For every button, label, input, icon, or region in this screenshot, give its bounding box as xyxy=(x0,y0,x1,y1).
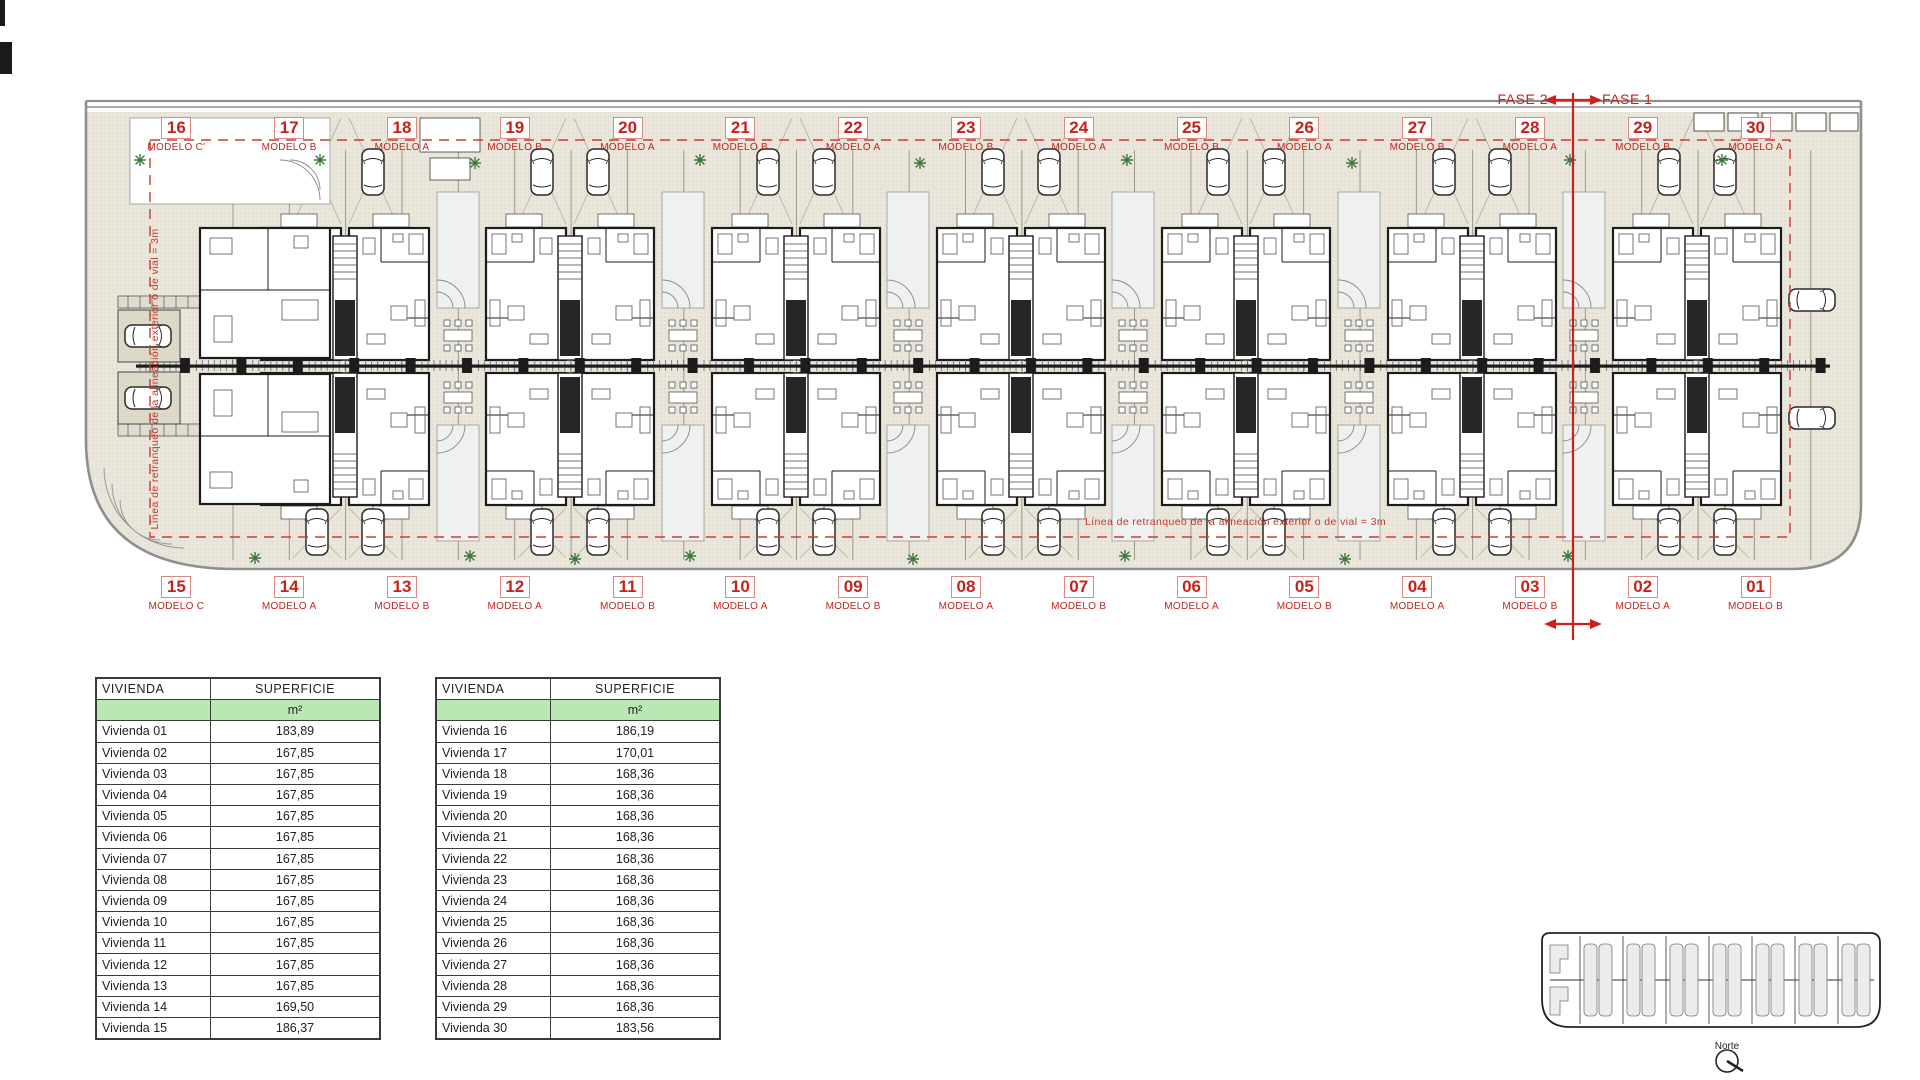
table-row: Vivienda 03 167,85 xyxy=(97,764,379,785)
table-row: Vivienda 24 168,36 xyxy=(437,891,719,912)
table-row: Vivienda 11 167,85 xyxy=(97,933,379,954)
table-row: Vivienda 04 167,85 xyxy=(97,785,379,806)
unit-number-badge: 08 xyxy=(951,576,981,598)
unit-modelo-label: MODELO B xyxy=(1390,142,1445,153)
superficie-value: 186,37 xyxy=(211,1018,379,1038)
vivienda-label: Vivienda 05 xyxy=(97,806,211,826)
superficie-value: 168,36 xyxy=(551,933,719,953)
unit-number-badge: 29 xyxy=(1628,117,1658,139)
unit-label: 08 MODELO A xyxy=(910,576,1023,612)
vivienda-label: Vivienda 25 xyxy=(437,912,551,932)
superficie-value: 167,85 xyxy=(211,912,379,932)
table-row: Vivienda 25 168,36 xyxy=(437,912,719,933)
unit-modelo-label: MODELO A xyxy=(487,601,542,612)
vivienda-label: Vivienda 20 xyxy=(437,806,551,826)
unit-number-badge: 15 xyxy=(161,576,191,598)
unit-modelo-label: MODELO B xyxy=(1277,601,1332,612)
vivienda-label: Vivienda 26 xyxy=(437,933,551,953)
table-row: Vivienda 20 168,36 xyxy=(437,806,719,827)
table-row: Vivienda 27 168,36 xyxy=(437,954,719,975)
table-row: Vivienda 18 168,36 xyxy=(437,764,719,785)
unit-modelo-label: MODELO B xyxy=(1051,601,1106,612)
vivienda-label: Vivienda 02 xyxy=(97,743,211,763)
superficie-value: 167,85 xyxy=(211,849,379,869)
vivienda-label: Vivienda 30 xyxy=(437,1018,551,1038)
superficie-value: 168,36 xyxy=(551,764,719,784)
table-header-vivienda: VIVIENDA xyxy=(437,679,551,699)
table-unit-cell-empty xyxy=(437,700,551,720)
unit-number-badge: 16 xyxy=(161,117,191,139)
unit-label: 07 MODELO B xyxy=(1022,576,1135,612)
superficie-value: 168,36 xyxy=(551,891,719,911)
vivienda-label: Vivienda 19 xyxy=(437,785,551,805)
unit-modelo-label: MODELO A xyxy=(600,142,655,153)
unit-number-badge: 06 xyxy=(1177,576,1207,598)
unit-label: 18 MODELO A xyxy=(346,117,459,153)
vivienda-label: Vivienda 13 xyxy=(97,976,211,996)
vivienda-label: Vivienda 04 xyxy=(97,785,211,805)
unit-number-badge: 19 xyxy=(500,117,530,139)
unit-modelo-label: MODELO B xyxy=(826,601,881,612)
plan-bottom-unit-labels: 15 MODELO C 14 MODELO A 13 MODELO B 12 M… xyxy=(120,576,1812,612)
unit-modelo-label: MODELO B xyxy=(1502,601,1557,612)
superficie-value: 167,85 xyxy=(211,891,379,911)
unit-label: 26 MODELO A xyxy=(1248,117,1361,153)
unit-modelo-label: MODELO A xyxy=(1277,142,1332,153)
unit-label: 27 MODELO B xyxy=(1361,117,1474,153)
unit-modelo-label: MODELO B xyxy=(374,601,429,612)
superficie-value: 167,85 xyxy=(211,764,379,784)
table-row: Vivienda 21 168,36 xyxy=(437,827,719,848)
unit-label: 04 MODELO A xyxy=(1361,576,1474,612)
unit-modelo-label: MODELO A xyxy=(1390,601,1445,612)
vivienda-label: Vivienda 21 xyxy=(437,827,551,847)
unit-label: 03 MODELO B xyxy=(1474,576,1587,612)
table-row: Vivienda 26 168,36 xyxy=(437,933,719,954)
unit-number-badge: 24 xyxy=(1064,117,1094,139)
unit-number-badge: 09 xyxy=(838,576,868,598)
unit-modelo-label: MODELO B xyxy=(713,142,768,153)
table-row: Vivienda 17 170,01 xyxy=(437,743,719,764)
unit-number-badge: 05 xyxy=(1289,576,1319,598)
unit-label: 06 MODELO A xyxy=(1135,576,1248,612)
unit-number-badge: 10 xyxy=(725,576,755,598)
unit-label: 01 MODELO B xyxy=(1699,576,1812,612)
unit-modelo-label: MODELO A xyxy=(1164,601,1219,612)
vivienda-label: Vivienda 08 xyxy=(97,870,211,890)
table-row: Vivienda 12 167,85 xyxy=(97,954,379,975)
table-unit-cell: m² xyxy=(551,700,719,720)
vivienda-label: Vivienda 27 xyxy=(437,954,551,974)
unit-label: 17 MODELO B xyxy=(233,117,346,153)
vivienda-label: Vivienda 24 xyxy=(437,891,551,911)
superficie-value: 167,85 xyxy=(211,954,379,974)
unit-modelo-label: MODELO A xyxy=(1615,601,1670,612)
unit-modelo-label: MODELO B xyxy=(1164,142,1219,153)
unit-modelo-label: MODELO B xyxy=(1615,142,1670,153)
superficie-table-1: VIVIENDA SUPERFICIE m² Vivienda 01 183,8… xyxy=(95,677,381,1040)
superficie-value: 183,56 xyxy=(551,1018,719,1038)
unit-number-badge: 18 xyxy=(387,117,417,139)
table-row: Vivienda 22 168,36 xyxy=(437,849,719,870)
table-unit-cell-empty xyxy=(97,700,211,720)
vivienda-label: Vivienda 10 xyxy=(97,912,211,932)
setback-note-center: Línea de retranqueo de la alineación ext… xyxy=(1085,516,1386,528)
vivienda-label: Vivienda 11 xyxy=(97,933,211,953)
unit-label: 28 MODELO A xyxy=(1474,117,1587,153)
vivienda-label: Vivienda 07 xyxy=(97,849,211,869)
superficie-value: 170,01 xyxy=(551,743,719,763)
unit-label: 21 MODELO B xyxy=(684,117,797,153)
table-header-superficie: SUPERFICIE xyxy=(211,679,379,699)
superficie-value: 186,19 xyxy=(551,721,719,741)
vivienda-label: Vivienda 28 xyxy=(437,976,551,996)
table-row: Vivienda 10 167,85 xyxy=(97,912,379,933)
unit-modelo-label: MODELO A xyxy=(1728,142,1783,153)
table-row: Vivienda 05 167,85 xyxy=(97,806,379,827)
unit-label: 29 MODELO B xyxy=(1586,117,1699,153)
unit-number-badge: 03 xyxy=(1515,576,1545,598)
unit-number-badge: 20 xyxy=(613,117,643,139)
unit-label: 10 MODELO A xyxy=(684,576,797,612)
vivienda-label: Vivienda 12 xyxy=(97,954,211,974)
unit-number-badge: 17 xyxy=(274,117,304,139)
unit-label: 11 MODELO B xyxy=(571,576,684,612)
superficie-value: 183,89 xyxy=(211,721,379,741)
vivienda-label: Vivienda 15 xyxy=(97,1018,211,1038)
unit-number-badge: 21 xyxy=(725,117,755,139)
north-compass-icon xyxy=(1716,1050,1743,1072)
unit-modelo-label: MODELO B xyxy=(1728,601,1783,612)
unit-label: 22 MODELO A xyxy=(797,117,910,153)
unit-modelo-label: MODELO A xyxy=(939,601,994,612)
unit-label: 20 MODELO A xyxy=(571,117,684,153)
table-row: Vivienda 01 183,89 xyxy=(97,721,379,742)
unit-label: 05 MODELO B xyxy=(1248,576,1361,612)
unit-number-badge: 01 xyxy=(1741,576,1771,598)
table-row: Vivienda 15 186,37 xyxy=(97,1018,379,1038)
vivienda-label: Vivienda 17 xyxy=(437,743,551,763)
unit-number-badge: 11 xyxy=(613,576,643,598)
vivienda-label: Vivienda 14 xyxy=(97,997,211,1017)
table-header-vivienda: VIVIENDA xyxy=(97,679,211,699)
superficie-value: 168,36 xyxy=(551,849,719,869)
table-row: Vivienda 08 167,85 xyxy=(97,870,379,891)
unit-modelo-label: MODELO B xyxy=(600,601,655,612)
unit-label: 23 MODELO B xyxy=(910,117,1023,153)
vivienda-label: Vivienda 16 xyxy=(437,721,551,741)
unit-modelo-label: MODELO A xyxy=(713,601,768,612)
unit-number-badge: 25 xyxy=(1177,117,1207,139)
superficie-value: 167,85 xyxy=(211,806,379,826)
table-header-superficie: SUPERFICIE xyxy=(551,679,719,699)
table-row: Vivienda 16 186,19 xyxy=(437,721,719,742)
vivienda-label: Vivienda 09 xyxy=(97,891,211,911)
unit-modelo-label: MODELO A xyxy=(262,601,317,612)
superficie-value: 167,85 xyxy=(211,827,379,847)
superficie-value: 167,85 xyxy=(211,743,379,763)
vivienda-label: Vivienda 03 xyxy=(97,764,211,784)
site-plan-page: { "colors": { "accent_red": "#c2231d", "… xyxy=(0,0,1920,1080)
unit-label: 19 MODELO B xyxy=(458,117,571,153)
unit-number-badge: 26 xyxy=(1289,117,1319,139)
superficie-value: 168,36 xyxy=(551,997,719,1017)
table-row: Vivienda 28 168,36 xyxy=(437,976,719,997)
vivienda-label: Vivienda 18 xyxy=(437,764,551,784)
superficie-value: 167,85 xyxy=(211,785,379,805)
table-row: Vivienda 14 169,50 xyxy=(97,997,379,1018)
unit-label: 24 MODELO A xyxy=(1022,117,1135,153)
superficie-table-2: VIVIENDA SUPERFICIE m² Vivienda 16 186,1… xyxy=(435,677,721,1040)
superficie-value: 168,36 xyxy=(551,827,719,847)
unit-modelo-label: MODELO A xyxy=(1503,142,1558,153)
superficie-value: 168,36 xyxy=(551,912,719,932)
table-row: Vivienda 29 168,36 xyxy=(437,997,719,1018)
unit-label: 09 MODELO B xyxy=(797,576,910,612)
unit-modelo-label: MODELO A xyxy=(826,142,881,153)
vivienda-label: Vivienda 01 xyxy=(97,721,211,741)
vivienda-label: Vivienda 29 xyxy=(437,997,551,1017)
unit-number-badge: 07 xyxy=(1064,576,1094,598)
unit-number-badge: 27 xyxy=(1402,117,1432,139)
setback-note-left: Línea de retranqueo de la alineación ext… xyxy=(149,209,161,549)
superficie-value: 167,85 xyxy=(211,933,379,953)
table-row: Vivienda 09 167,85 xyxy=(97,891,379,912)
unit-number-badge: 14 xyxy=(274,576,304,598)
superficie-value: 167,85 xyxy=(211,870,379,890)
superficie-value: 168,36 xyxy=(551,806,719,826)
superficie-value: 168,36 xyxy=(551,954,719,974)
table-row: Vivienda 06 167,85 xyxy=(97,827,379,848)
unit-label: 02 MODELO A xyxy=(1586,576,1699,612)
unit-number-badge: 13 xyxy=(387,576,417,598)
unit-number-badge: 02 xyxy=(1628,576,1658,598)
superficie-value: 167,85 xyxy=(211,976,379,996)
unit-label: 25 MODELO B xyxy=(1135,117,1248,153)
unit-label: 12 MODELO A xyxy=(458,576,571,612)
table-row: Vivienda 19 168,36 xyxy=(437,785,719,806)
unit-label: 16 MODELO C' xyxy=(120,117,233,153)
unit-modelo-label: MODELO A xyxy=(375,142,430,153)
table-row: Vivienda 02 167,85 xyxy=(97,743,379,764)
superficie-value: 168,36 xyxy=(551,870,719,890)
unit-label: 30 MODELO A xyxy=(1699,117,1812,153)
unit-label: 13 MODELO B xyxy=(346,576,459,612)
vivienda-label: Vivienda 22 xyxy=(437,849,551,869)
unit-label: 14 MODELO A xyxy=(233,576,346,612)
unit-modelo-label: MODELO B xyxy=(262,142,317,153)
unit-number-badge: 22 xyxy=(838,117,868,139)
table-row: Vivienda 13 167,85 xyxy=(97,976,379,997)
unit-number-badge: 30 xyxy=(1741,117,1771,139)
north-label: Norte xyxy=(1697,1041,1757,1052)
unit-number-badge: 28 xyxy=(1515,117,1545,139)
unit-number-badge: 23 xyxy=(951,117,981,139)
superficie-value: 169,50 xyxy=(211,997,379,1017)
unit-label: 15 MODELO C xyxy=(120,576,233,612)
table-unit-cell: m² xyxy=(211,700,379,720)
table-row: Vivienda 07 167,85 xyxy=(97,849,379,870)
unit-modelo-label: MODELO B xyxy=(487,142,542,153)
plan-top-unit-labels: 16 MODELO C' 17 MODELO B 18 MODELO A 19 … xyxy=(120,117,1812,153)
table-row: Vivienda 23 168,36 xyxy=(437,870,719,891)
unit-modelo-label: MODELO A xyxy=(1051,142,1106,153)
vivienda-label: Vivienda 06 xyxy=(97,827,211,847)
superficie-value: 168,36 xyxy=(551,785,719,805)
unit-number-badge: 12 xyxy=(500,576,530,598)
vivienda-label: Vivienda 23 xyxy=(437,870,551,890)
unit-number-badge: 04 xyxy=(1402,576,1432,598)
superficie-value: 168,36 xyxy=(551,976,719,996)
unit-modelo-label: MODELO C' xyxy=(147,142,205,153)
table-row: Vivienda 30 183,56 xyxy=(437,1018,719,1038)
unit-modelo-label: MODELO C xyxy=(149,601,205,612)
unit-modelo-label: MODELO B xyxy=(938,142,993,153)
